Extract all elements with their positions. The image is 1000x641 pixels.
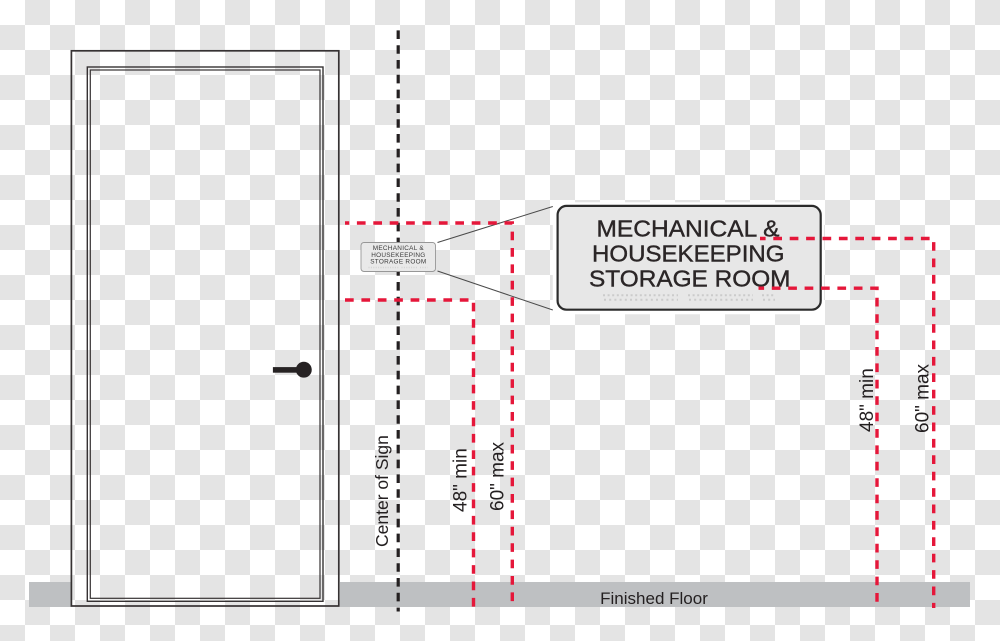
svg-text:48" min: 48" min [857, 368, 878, 432]
svg-text:Center of Sign: Center of Sign [372, 435, 392, 547]
svg-text:60" max: 60" max [488, 441, 509, 511]
svg-text:HOUSEKEEPING: HOUSEKEEPING [592, 240, 785, 266]
svg-text:60" max: 60" max [913, 363, 934, 433]
svg-text:STORAGE ROOM: STORAGE ROOM [370, 258, 426, 265]
svg-text:Finished Floor: Finished Floor [600, 589, 708, 608]
svg-text:48" min: 48" min [451, 448, 472, 512]
svg-text:MECHANICAL &: MECHANICAL & [597, 215, 780, 241]
